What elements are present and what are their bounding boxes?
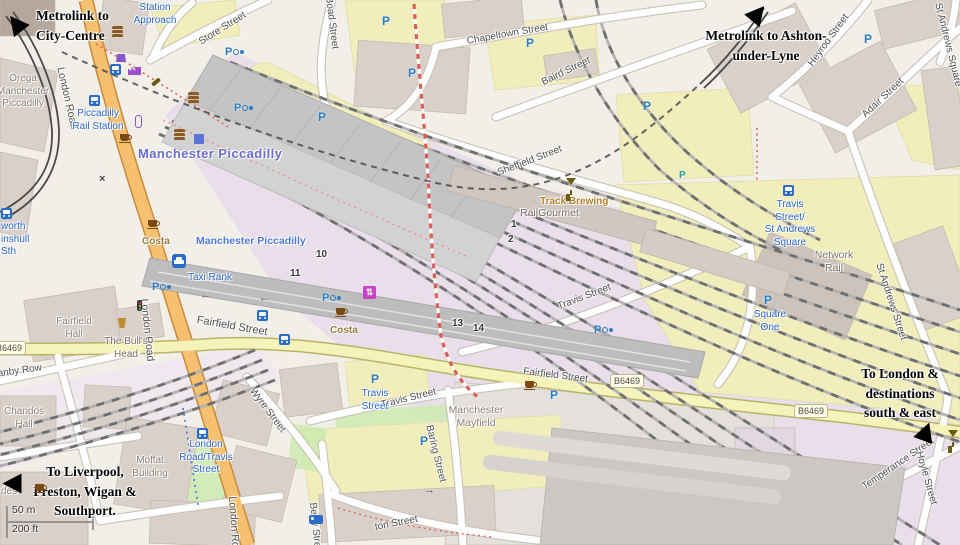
road-ref-badge: B6469	[610, 374, 644, 388]
label-manchester-piccadilly-platform: Manchester Piccadilly	[196, 235, 306, 247]
platform-number-11: 11	[290, 268, 301, 279]
parking-icon: P	[550, 388, 558, 402]
parking-icon: P	[643, 99, 651, 113]
level-crossing-icon: ×	[99, 173, 105, 185]
parking-icon: P	[864, 32, 872, 46]
oneway-arrow-icon: ←	[200, 289, 211, 301]
label-fairfield-hall: FairfieldHall	[48, 316, 100, 341]
label-square-one: SquareOne	[744, 309, 796, 334]
taxi-rank-icon	[172, 254, 186, 268]
label-orega: OregaManchesterPiccadilly	[0, 73, 58, 111]
road-ref-badge: B6469	[794, 404, 828, 418]
platform-number-10: 10	[316, 249, 327, 260]
platform-number-13: 13	[452, 318, 463, 329]
annotation-to-london: To London &destinationssouth & east	[846, 364, 954, 423]
label-manchester-piccadilly: Manchester Piccadilly	[138, 146, 282, 161]
bus-stop-icon	[783, 185, 794, 196]
annotation-metrolink-city: Metrolink toCity-Centre	[36, 6, 109, 45]
parking-icon: P	[382, 14, 390, 28]
label-railgourmet: RailGourmet	[520, 207, 579, 220]
parking-bicycle-icon: P	[594, 324, 608, 336]
oneway-arrow-icon: ←	[259, 292, 270, 304]
parking-bicycle-icon: P	[225, 46, 239, 58]
parking-icon: P	[526, 36, 534, 50]
parking-icon: P	[318, 110, 326, 124]
stationery-shop-icon	[135, 115, 142, 128]
parking-bicycle-icon: P	[152, 281, 166, 293]
hotel-icon	[309, 515, 323, 524]
cafe-icon	[336, 308, 345, 315]
bicycle-parking-icon: P	[679, 170, 686, 181]
bus-stop-icon	[197, 428, 208, 439]
label-taxi-rank: Taxi Rank	[188, 272, 232, 285]
parking-bicycle-icon: P	[234, 102, 248, 114]
annotation-metrolink-ashton: Metrolink to Ashton-under-Lyne	[690, 26, 842, 65]
label-network-rail: NetworkRail	[800, 249, 868, 275]
oneway-arrow-icon: →	[424, 484, 435, 496]
parking-icon: P	[420, 434, 428, 448]
parking-icon: P	[371, 372, 379, 386]
label-costa-station: Costa	[142, 236, 170, 247]
fast-food-icon	[112, 26, 123, 29]
traffic-signals-icon	[137, 300, 142, 311]
bus-stop-icon	[110, 64, 121, 75]
bus-stop-icon	[1, 208, 12, 219]
cafe-icon	[525, 381, 534, 388]
fast-food-icon	[188, 92, 199, 95]
platform-number-14: 14	[473, 323, 484, 334]
bus-stop-icon	[257, 310, 268, 321]
label-costa-fairfield: Costa	[330, 325, 358, 336]
cafe-icon	[120, 134, 129, 141]
parking-bicycle-icon: P	[322, 292, 336, 304]
map-viewport[interactable]: London Road London Road London Road Stor…	[0, 0, 960, 545]
bar-icon	[948, 430, 958, 437]
label-station-approach: StationApproach	[124, 2, 186, 27]
parking-icon: P	[764, 293, 772, 307]
platform-number-2: 2	[508, 234, 514, 245]
parking-icon: P	[408, 66, 416, 80]
label-bulls-head: The Bull'sHead	[98, 336, 154, 361]
road-ref-badge: B6469	[0, 341, 26, 355]
label-travis-street-parking: TravisStreet	[352, 388, 398, 413]
label-track-brewing: Track Brewing	[540, 196, 608, 207]
label-piccadilly-rail-station: PiccadillyRail Station	[62, 108, 134, 133]
lift-icon: ⇅	[363, 286, 376, 299]
bar-icon	[566, 178, 576, 185]
label-stop-fragment: worthinshullSth	[1, 221, 43, 259]
shop-icon	[194, 134, 204, 144]
cafe-icon	[35, 484, 44, 491]
arrow-to-liverpool	[3, 474, 22, 494]
cafe-icon	[148, 220, 157, 227]
bus-stop-icon	[89, 95, 100, 106]
fast-food-icon	[174, 129, 185, 132]
platform-number-1: 1	[511, 219, 517, 230]
bus-stop-icon	[279, 334, 290, 345]
label-manchester-mayfield: ManchesterMayfield	[440, 404, 512, 430]
label-london-road-travis-stop: LondonRoad/TravisStreet	[172, 439, 240, 477]
scale-imperial: 200 ft	[12, 523, 38, 535]
supermarket-icon	[116, 54, 126, 62]
label-chandos-hall: ChandosHall	[0, 406, 50, 431]
label-travis-st-andrews-stop: TravisStreet/St AndrewsSquare	[752, 199, 828, 249]
